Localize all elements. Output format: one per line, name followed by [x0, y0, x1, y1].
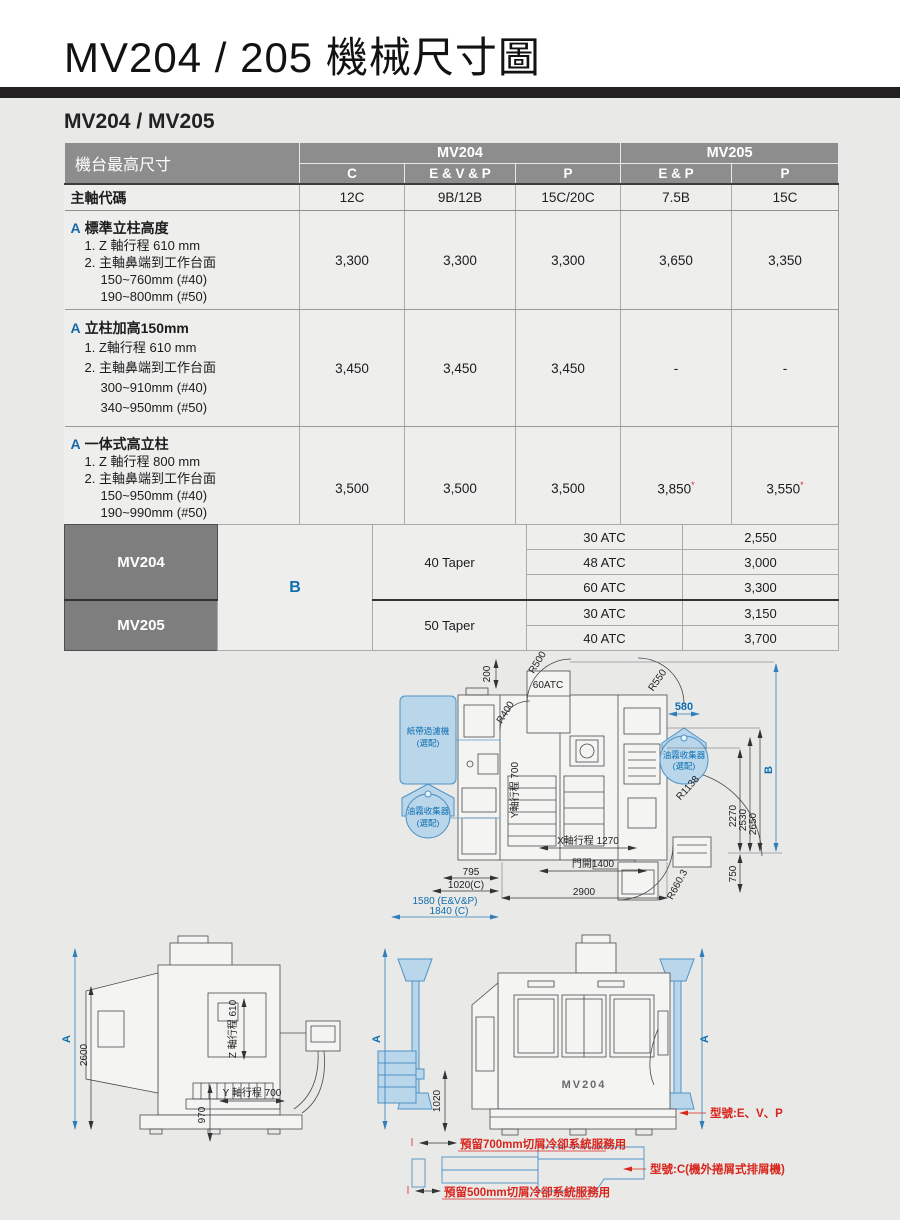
dim-1840: 1840 (C) — [430, 906, 469, 917]
cell: 15C — [732, 184, 839, 211]
dim-r550: R550 — [647, 667, 670, 693]
dim-60atc: 60ATC — [533, 680, 563, 691]
dim-b: B — [763, 766, 775, 774]
oil-mist-label: 油霧收集器 — [407, 806, 450, 816]
page-title: MV204 / 205 機械尺寸圖 — [64, 24, 541, 85]
atc-b-dimension: B — [218, 525, 373, 651]
spec-corner-label: 機台最高尺寸 — [65, 143, 300, 185]
atc-cell: 3,150 — [683, 600, 839, 626]
optional-label: (選配) — [417, 738, 440, 748]
cell: 7.5B — [621, 184, 732, 211]
block-label: A立柱加高150mm 1. Z軸行程 610 mm 2. 主軸鼻端到工作台面 3… — [65, 310, 300, 427]
atc-model-mv204: MV204 — [65, 525, 218, 601]
cell: 3,300 — [405, 211, 516, 310]
atc-cell: 60 ATC — [527, 575, 683, 601]
atc-cell: 30 ATC — [527, 600, 683, 626]
atc-cell: 3,300 — [683, 575, 839, 601]
dim-200: 200 — [482, 665, 493, 682]
dim-1020c: 1020(C) — [448, 880, 484, 891]
dim-1020: 1020 — [432, 1089, 443, 1112]
cell: 15C/20C — [516, 184, 621, 211]
cell: - — [621, 310, 732, 427]
cell: 3,450 — [300, 310, 405, 427]
dim-2900: 2900 — [573, 887, 596, 898]
front-view-drawing: MV204 — [368, 933, 900, 1220]
block-marker: A — [71, 320, 81, 336]
block-line: 2. 主軸鼻端到工作台面 — [71, 358, 296, 378]
reserve-700-note: 預留700mm切屑冷卻系統服務用 — [460, 1137, 626, 1151]
block-line: 300~910mm (#40) — [71, 378, 296, 398]
block-marker: A — [71, 220, 81, 236]
block-line: 150~950mm (#40) — [71, 487, 296, 504]
spec-block-raised-column: A立柱加高150mm 1. Z軸行程 610 mm 2. 主軸鼻端到工作台面 3… — [65, 310, 839, 427]
row-label: 主軸代碼 — [65, 184, 300, 211]
spec-group-mv205: MV205 — [621, 143, 839, 164]
spec-group-mv204: MV204 — [300, 143, 621, 164]
dim-580: 580 — [675, 701, 693, 713]
dim-a-right: A — [699, 1035, 711, 1043]
block-line: 1. Z軸行程 610 mm — [71, 338, 296, 358]
reserve-500-note: 預留500mm切屑冷卻系統服務用 — [444, 1185, 610, 1199]
cell: 3,450 — [405, 310, 516, 427]
atc-table: MV204 B 40 Taper 30 ATC 2,550 48 ATC 3,0… — [64, 524, 839, 651]
spec-col-header: E & P — [621, 164, 732, 185]
atc-cell: 30 ATC — [527, 525, 683, 550]
atc-cell: 48 ATC — [527, 550, 683, 575]
catalog-page: MV204 / 205 機械尺寸圖 MV204 / MV205 機台最高尺寸 M… — [0, 0, 900, 1220]
block-line: 190~800mm (#50) — [71, 288, 296, 305]
block-line: 340~950mm (#50) — [71, 398, 296, 418]
title-divider-bar — [0, 87, 900, 98]
atc-model-mv205: MV205 — [65, 600, 218, 651]
y-axis-travel-label: Y 軸行程 700 — [223, 1086, 282, 1099]
block-marker: A — [71, 436, 81, 452]
cell: 3,300 — [300, 211, 405, 310]
block-line: 190~990mm (#50) — [71, 504, 296, 521]
spec-table: 機台最高尺寸 MV204 MV205 C E & V & P P E & P P… — [64, 142, 839, 550]
spec-block-standard-column: A標準立柱高度 1. Z 軸行程 610 mm 2. 主軸鼻端到工作台面 150… — [65, 211, 839, 310]
cell: 3,350 — [732, 211, 839, 310]
oil-mist-label: 油霧收集器 — [663, 750, 706, 760]
spec-col-header: P — [516, 164, 621, 185]
optional-label: (選配) — [673, 761, 696, 771]
top-view-drawing: 紙帶過濾機 (選配) 油霧收集器 (選配) 油霧收集器 (選配) — [388, 648, 900, 940]
cell: 12C — [300, 184, 405, 211]
z-axis-travel-label: Z 軸行程 610 — [226, 999, 239, 1058]
door-opening-label: 門開1400 — [572, 858, 615, 870]
block-title: 一体式高立柱 — [85, 436, 169, 452]
spec-col-header: E & V & P — [405, 164, 516, 185]
cell: - — [732, 310, 839, 427]
dim-795: 795 — [463, 867, 480, 878]
block-title: 立柱加高150mm — [85, 320, 189, 336]
atc-taper-40: 40 Taper — [373, 525, 527, 601]
paper-filter-label: 紙帶過濾機 — [407, 726, 450, 736]
type-evp-note: 型號:E、V、P — [710, 1106, 783, 1120]
block-title: 標準立柱高度 — [85, 220, 169, 236]
dim-750: 750 — [728, 865, 739, 882]
spec-col-header: C — [300, 164, 405, 185]
atc-cell: 3,000 — [683, 550, 839, 575]
dim-970: 970 — [197, 1106, 208, 1123]
atc-cell: 2,550 — [683, 525, 839, 550]
atc-taper-50: 50 Taper — [373, 600, 527, 651]
cell: 9B/12B — [405, 184, 516, 211]
block-line: 1. Z 軸行程 610 mm — [71, 237, 296, 254]
side-view-drawing: A 2600 Z 軸行程 610 970 Y 軸行程 700 — [58, 933, 388, 1220]
type-c-conveyor-outline — [412, 1147, 644, 1191]
cell: 3,650 — [621, 211, 732, 310]
spindle-code-row: 主軸代碼 12C 9B/12B 15C/20C 7.5B 15C — [65, 184, 839, 211]
x-axis-travel-label: X軸行程 1270 — [557, 834, 619, 847]
dim-2600: 2600 — [79, 1043, 90, 1066]
type-c-note: 型號:C(機外捲屑式排屑機) — [650, 1162, 785, 1176]
machine-side-outline — [86, 936, 340, 1134]
block-line: 2. 主軸鼻端到工作台面 — [71, 254, 296, 271]
block-label: A標準立柱高度 1. Z 軸行程 610 mm 2. 主軸鼻端到工作台面 150… — [65, 211, 300, 310]
cell: 3,300 — [516, 211, 621, 310]
block-line: 1. Z 軸行程 800 mm — [71, 453, 296, 470]
dim-a: A — [61, 1035, 73, 1043]
dim-r660: R660.3 — [665, 868, 690, 902]
cell: 3,450 — [516, 310, 621, 427]
dim-2650: 2650 — [748, 812, 759, 835]
spec-col-header: P — [732, 164, 839, 185]
block-line: 2. 主軸鼻端到工作台面 — [71, 470, 296, 487]
block-line: 150~760mm (#40) — [71, 271, 296, 288]
machine-front-outline — [472, 935, 676, 1135]
section-heading: MV204 / MV205 — [64, 110, 215, 134]
atc-cell: 40 ATC — [527, 626, 683, 651]
optional-label: (選配) — [417, 818, 440, 828]
y-axis-travel-label: Y軸行程 700 — [508, 761, 521, 818]
machine-model-label: MV204 — [562, 1079, 607, 1091]
atc-cell: 3,700 — [683, 626, 839, 651]
dim-a-left: A — [371, 1035, 383, 1043]
